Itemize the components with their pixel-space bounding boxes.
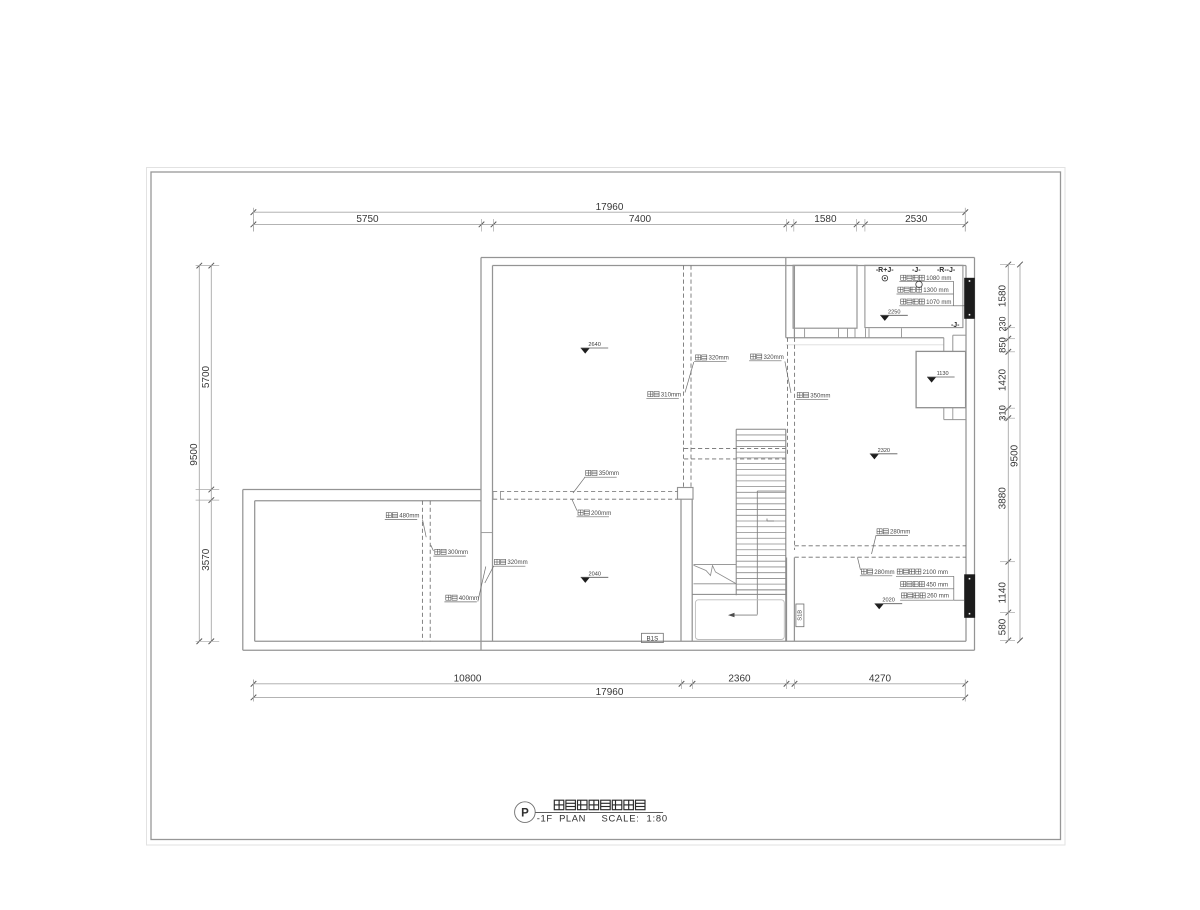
svg-text:400mm: 400mm	[459, 595, 479, 602]
svg-text:9500: 9500	[189, 443, 200, 466]
svg-text:2360: 2360	[728, 673, 751, 684]
svg-text:1580: 1580	[997, 284, 1008, 307]
svg-text:260 mm: 260 mm	[927, 593, 949, 600]
svg-text:17960: 17960	[596, 687, 624, 698]
svg-text:1070 mm: 1070 mm	[926, 299, 951, 306]
svg-text:2530: 2530	[905, 214, 928, 225]
svg-text:580: 580	[997, 618, 1008, 635]
svg-text:320mm: 320mm	[709, 355, 729, 362]
svg-text:850: 850	[997, 337, 1008, 353]
svg-text:P: P	[521, 807, 529, 819]
svg-text:S1B: S1B	[797, 610, 803, 621]
svg-text:2320: 2320	[878, 448, 890, 454]
svg-text:9500: 9500	[1010, 444, 1021, 467]
svg-text:320mm: 320mm	[764, 354, 784, 361]
svg-text:3880: 3880	[997, 487, 1008, 510]
svg-text:4270: 4270	[869, 673, 892, 684]
svg-text:450 mm: 450 mm	[926, 581, 948, 588]
svg-text:-R--J-: -R--J-	[937, 267, 956, 274]
svg-text:-J-: -J-	[912, 267, 921, 274]
svg-text:280mm: 280mm	[874, 569, 894, 576]
svg-text:10800: 10800	[454, 673, 482, 684]
svg-text:2250: 2250	[888, 309, 900, 315]
svg-text:2020: 2020	[882, 598, 894, 604]
svg-text:280mm: 280mm	[890, 529, 910, 536]
svg-text:350mm: 350mm	[810, 392, 830, 399]
svg-text:B1S: B1S	[647, 636, 659, 643]
svg-text:310: 310	[997, 405, 1008, 421]
svg-text:1140: 1140	[997, 582, 1008, 604]
svg-text:2040: 2040	[589, 571, 601, 577]
svg-text:480mm: 480mm	[399, 512, 419, 519]
svg-text:1420: 1420	[997, 368, 1008, 391]
svg-text:5700: 5700	[201, 365, 212, 388]
svg-text:3570: 3570	[201, 548, 212, 571]
svg-text:230: 230	[997, 316, 1007, 331]
svg-text:200mm: 200mm	[591, 510, 611, 517]
svg-text:310mm: 310mm	[661, 391, 681, 398]
svg-text:-R+J-: -R+J-	[876, 267, 894, 274]
svg-text:7400: 7400	[629, 214, 652, 225]
svg-text:2640: 2640	[588, 342, 600, 348]
svg-text:1300 mm: 1300 mm	[923, 287, 948, 294]
svg-text:SCALE: 1:80: SCALE: 1:80	[602, 813, 668, 824]
svg-text:-1F PLAN: -1F PLAN	[537, 813, 586, 824]
svg-text:-J-: -J-	[951, 322, 960, 329]
svg-text:1130: 1130	[937, 371, 949, 377]
svg-text:5750: 5750	[356, 214, 379, 225]
svg-text:320mm: 320mm	[507, 559, 527, 566]
svg-text:2100 mm: 2100 mm	[923, 569, 948, 576]
svg-text:1580: 1580	[814, 214, 837, 225]
svg-text:300mm: 300mm	[448, 549, 468, 556]
svg-text:350mm: 350mm	[599, 470, 619, 477]
svg-text:17960: 17960	[596, 202, 624, 213]
